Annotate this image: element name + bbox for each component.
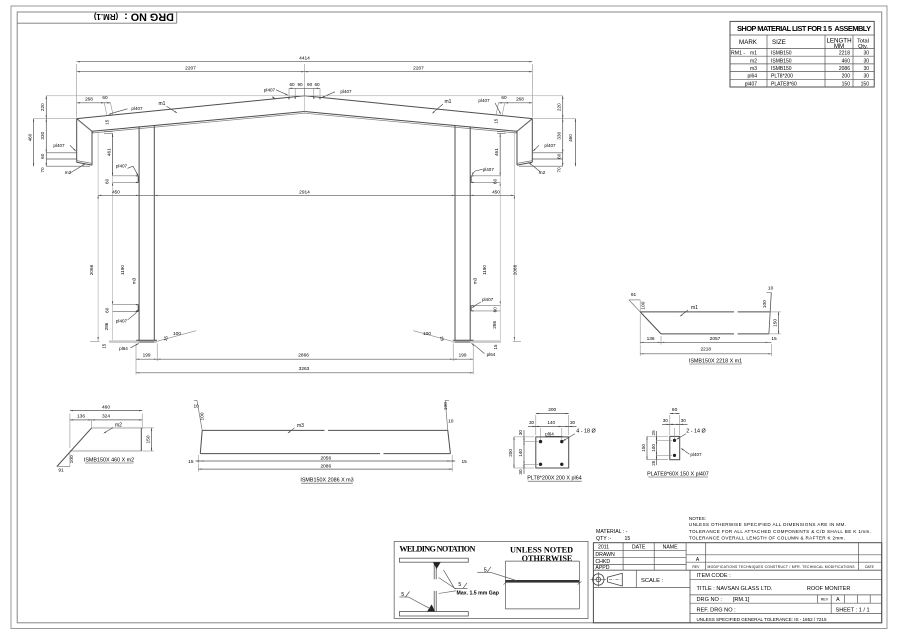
svg-text:NOTES:: NOTES: [689,516,706,521]
svg-text:APPD: APPD [595,565,609,571]
svg-text:268: 268 [85,97,93,102]
svg-text:DRAWN: DRAWN [595,552,615,558]
svg-text:30: 30 [681,418,687,423]
svg-text:ROOF MONITER: ROOF MONITER [807,586,851,592]
svg-text:TOLERANCE FOR ALL ATTACHED COM: TOLERANCE FOR ALL ATTACHED COMPONENTS & … [689,529,871,534]
svg-text:450: 450 [492,190,500,195]
svg-text:150: 150 [146,435,152,443]
svg-text:(RM.1): (RM.1) [93,12,118,21]
svg-text:pl407: pl407 [482,297,494,302]
svg-text:15: 15 [625,536,631,542]
svg-text:70: 70 [557,167,562,173]
svg-text:100: 100 [443,402,449,410]
svg-text:15: 15 [102,343,107,348]
svg-text:REV: REV [821,597,829,601]
svg-text:SIZE: SIZE [772,39,786,46]
svg-text:460: 460 [842,58,851,64]
svg-text:30: 30 [863,74,869,80]
svg-text:100: 100 [69,455,75,463]
svg-text:pl407: pl407 [483,167,495,172]
svg-text:2011: 2011 [598,545,609,551]
svg-text:100: 100 [173,331,181,337]
svg-text:[RM.1]: [RM.1] [733,597,750,603]
svg-text:461: 461 [494,148,499,156]
svg-text:2914: 2914 [299,190,310,196]
svg-text:2056: 2056 [320,455,331,461]
svg-text:PLATE8*60: PLATE8*60 [771,81,797,87]
svg-text:2066: 2066 [512,264,517,275]
svg-text:286: 286 [104,322,109,330]
svg-text:200: 200 [508,449,513,457]
svg-text:2086: 2086 [839,66,850,72]
svg-text:A: A [836,597,840,603]
svg-text:pl64: pl64 [487,352,496,357]
svg-text:100: 100 [640,301,646,309]
svg-text:10: 10 [768,286,774,292]
svg-text:m2: m2 [115,423,122,429]
svg-text:SCALE :: SCALE : [641,578,664,584]
svg-text:pl64: pl64 [545,432,554,437]
svg-text:2207: 2207 [185,65,196,71]
svg-text:ISMB150: ISMB150 [771,51,792,57]
svg-text:90: 90 [307,82,313,87]
svg-text:100: 100 [762,300,768,308]
svg-text:MM: MM [834,43,844,50]
svg-text:PLT8*200: PLT8*200 [771,74,793,80]
svg-text:3263: 3263 [299,366,310,372]
svg-text:ISMB150X 2086 X m3: ISMB150X 2086 X m3 [300,478,353,484]
svg-text:150: 150 [861,81,870,87]
svg-text:m1: m1 [691,305,698,311]
svg-text:461: 461 [107,148,112,156]
svg-text:2066: 2066 [89,264,94,275]
svg-text:15: 15 [493,118,498,124]
svg-text:WELDING NOTATION: WELDING NOTATION [399,545,475,554]
svg-text:m1: m1 [750,51,757,57]
svg-text:DRG NO :: DRG NO : [697,597,723,603]
svg-text:pl407: pl407 [340,89,352,94]
svg-text:ISMB150X 460 X m2: ISMB150X 460 X m2 [84,457,134,463]
svg-text:140: 140 [547,420,555,425]
svg-text:2218: 2218 [839,51,850,57]
svg-text:100: 100 [423,331,431,337]
svg-text:60: 60 [40,153,45,159]
svg-text:TOLERANCE OVERALL LENGTH OF CO: TOLERANCE OVERALL LENGTH OF COLUMN & RAF… [689,535,845,540]
svg-text:324: 324 [102,414,110,420]
svg-text:ITEM CODE :: ITEM CODE : [697,573,732,579]
svg-text:60: 60 [557,153,562,159]
svg-text:60: 60 [672,407,678,413]
svg-text:REV: REV [692,565,700,569]
svg-text:460: 460 [568,134,573,142]
svg-text:30: 30 [863,51,869,57]
svg-text:pl64: pl64 [748,74,758,80]
svg-text:268: 268 [516,97,524,102]
svg-text:DATE: DATE [632,545,646,551]
svg-text:CHKD: CHKD [595,559,610,565]
svg-text:15: 15 [771,336,777,342]
svg-text:30: 30 [570,420,576,425]
svg-text:136: 136 [647,336,655,342]
svg-text:ISMB150X 2218 X m1: ISMB150X 2218 X m1 [689,358,742,364]
svg-text:91: 91 [631,292,637,298]
svg-text:100: 100 [199,412,205,420]
svg-text:15: 15 [493,344,498,349]
svg-text:25: 25 [651,430,656,436]
svg-text:30: 30 [663,418,669,423]
svg-text:pl407: pl407 [131,106,143,111]
svg-text:60: 60 [493,178,498,184]
svg-text:REF. DRG NO :: REF. DRG NO : [697,607,737,613]
svg-text:60: 60 [493,307,498,313]
svg-text:m3: m3 [297,423,304,429]
svg-text:PLATE8*60X 150 X pl407: PLATE8*60X 150 X pl407 [647,471,709,477]
svg-text:220: 220 [40,103,45,111]
svg-text:200: 200 [842,74,851,80]
svg-text:TITLE : NAVSAN GLASS LTD.: TITLE : NAVSAN GLASS LTD. [697,586,773,592]
svg-text:1190: 1190 [482,265,487,275]
svg-text:2218: 2218 [701,346,712,351]
svg-text:DATE: DATE [865,565,875,569]
svg-text:pl64: pl64 [119,346,128,351]
svg-text:m2: m2 [539,170,546,176]
svg-text:QTY :-: QTY :- [596,536,611,542]
svg-text:Qty.: Qty. [858,44,868,50]
svg-text:2866: 2866 [298,353,309,359]
svg-text:NAME: NAME [663,545,679,551]
svg-text:90: 90 [297,82,303,87]
svg-text:SHEET : 1 / 1: SHEET : 1 / 1 [836,607,870,613]
svg-text:ISMB150: ISMB150 [771,66,792,72]
svg-text:2086: 2086 [320,463,331,469]
svg-text:60: 60 [105,178,110,184]
svg-text:pl407: pl407 [116,318,128,323]
svg-text:pl407: pl407 [544,143,556,148]
svg-text:220: 220 [557,103,562,111]
svg-text:60: 60 [314,82,320,87]
svg-text:70: 70 [40,167,45,173]
svg-text:UNLESS SPECIFIED GENERAL TOLER: UNLESS SPECIFIED GENERAL TOLERANCE: IS -… [697,617,827,622]
svg-text:30: 30 [863,66,869,72]
svg-text:15: 15 [188,459,194,465]
svg-text:pl407: pl407 [116,163,128,168]
svg-text:pl407: pl407 [478,98,490,103]
svg-text:136: 136 [77,414,85,420]
svg-text:2 - 14 Ø: 2 - 14 Ø [686,429,706,435]
svg-text:PLT8*200X 200 X pl64: PLT8*200X 200 X pl64 [527,475,581,481]
svg-text:460: 460 [28,133,33,141]
svg-text:m1: m1 [159,101,166,107]
svg-text:200: 200 [548,407,556,413]
svg-text:4414: 4414 [299,55,310,61]
svg-text:MATERIAL : -: MATERIAL : - [596,529,628,535]
svg-text:5: 5 [458,582,461,588]
svg-text:pl407: pl407 [264,87,276,92]
svg-text:MARK: MARK [739,39,758,46]
svg-text:140: 140 [518,449,523,457]
svg-text:199: 199 [459,353,467,358]
svg-text:286: 286 [492,321,497,329]
svg-text:RM1 -: RM1 - [731,51,745,57]
svg-text:m3: m3 [750,66,757,72]
svg-text:30: 30 [863,58,869,64]
svg-text:100: 100 [651,444,656,452]
svg-text:Max. 1.5 mm Gap: Max. 1.5 mm Gap [457,590,499,596]
svg-text:m2: m2 [750,58,757,64]
svg-text:ISMB150: ISMB150 [771,58,792,64]
svg-text:SHOP MATERIAL LIST FOR 1 5 AS: SHOP MATERIAL LIST FOR 1 5 ASSEMBLY [737,24,871,33]
svg-text:4 - 18 Ø: 4 - 18 Ø [576,429,596,435]
svg-text:25: 25 [651,460,656,466]
svg-text:UNLESS OTHERWISE SPECIFIED AL: UNLESS OTHERWISE SPECIFIED ALL DIMENSION… [689,522,846,527]
svg-text:30: 30 [518,430,523,436]
svg-text:60: 60 [289,82,295,87]
svg-text:460: 460 [102,404,110,410]
svg-text:15: 15 [462,459,468,465]
svg-text:15: 15 [104,119,109,125]
svg-text:2207: 2207 [413,65,424,71]
svg-text:pl407: pl407 [690,452,702,457]
svg-text:1190: 1190 [120,265,125,275]
svg-text:m3: m3 [132,277,137,284]
svg-text:91: 91 [58,468,64,474]
svg-text:330: 330 [557,131,562,139]
svg-text:150: 150 [773,319,779,327]
svg-text:150: 150 [641,444,646,452]
svg-text:OTHERWISE: OTHERWISE [522,554,573,563]
svg-text:m1: m1 [445,99,452,105]
svg-text:199: 199 [143,353,151,358]
svg-text:MODIFICATIONS TECHNIQUES CONST: MODIFICATIONS TECHNIQUES CONSTRUCT / MFR… [708,565,856,569]
svg-text:150: 150 [842,81,851,87]
svg-text:m3: m3 [473,277,478,284]
svg-text:60: 60 [105,307,110,313]
svg-text:450: 450 [112,190,120,195]
svg-text:DRG NO :: DRG NO : [124,11,174,23]
svg-text:30: 30 [518,469,523,475]
svg-text:2057: 2057 [710,336,721,342]
svg-text:330: 330 [40,131,45,139]
svg-text:30: 30 [529,420,535,425]
svg-text:pl407: pl407 [745,81,757,87]
svg-text:pl407: pl407 [53,143,65,148]
svg-text:10: 10 [194,404,200,410]
svg-text:10: 10 [448,418,454,424]
